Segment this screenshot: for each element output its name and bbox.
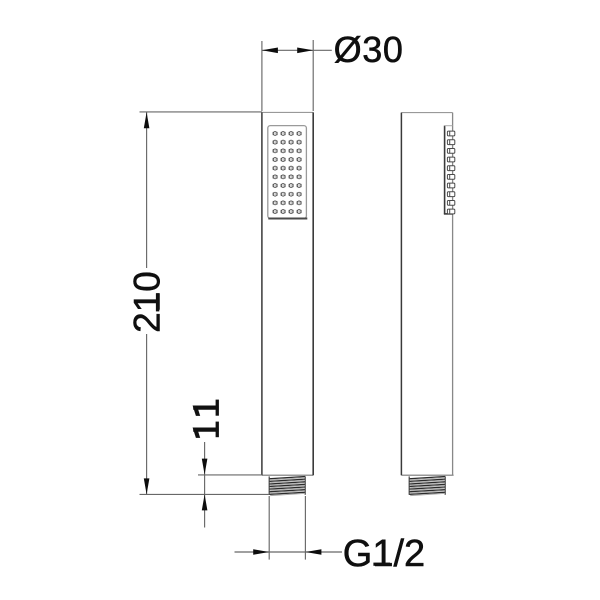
svg-text:210: 210 <box>126 271 167 333</box>
svg-text:G1/2: G1/2 <box>343 533 425 575</box>
svg-text:Ø30: Ø30 <box>334 29 404 70</box>
